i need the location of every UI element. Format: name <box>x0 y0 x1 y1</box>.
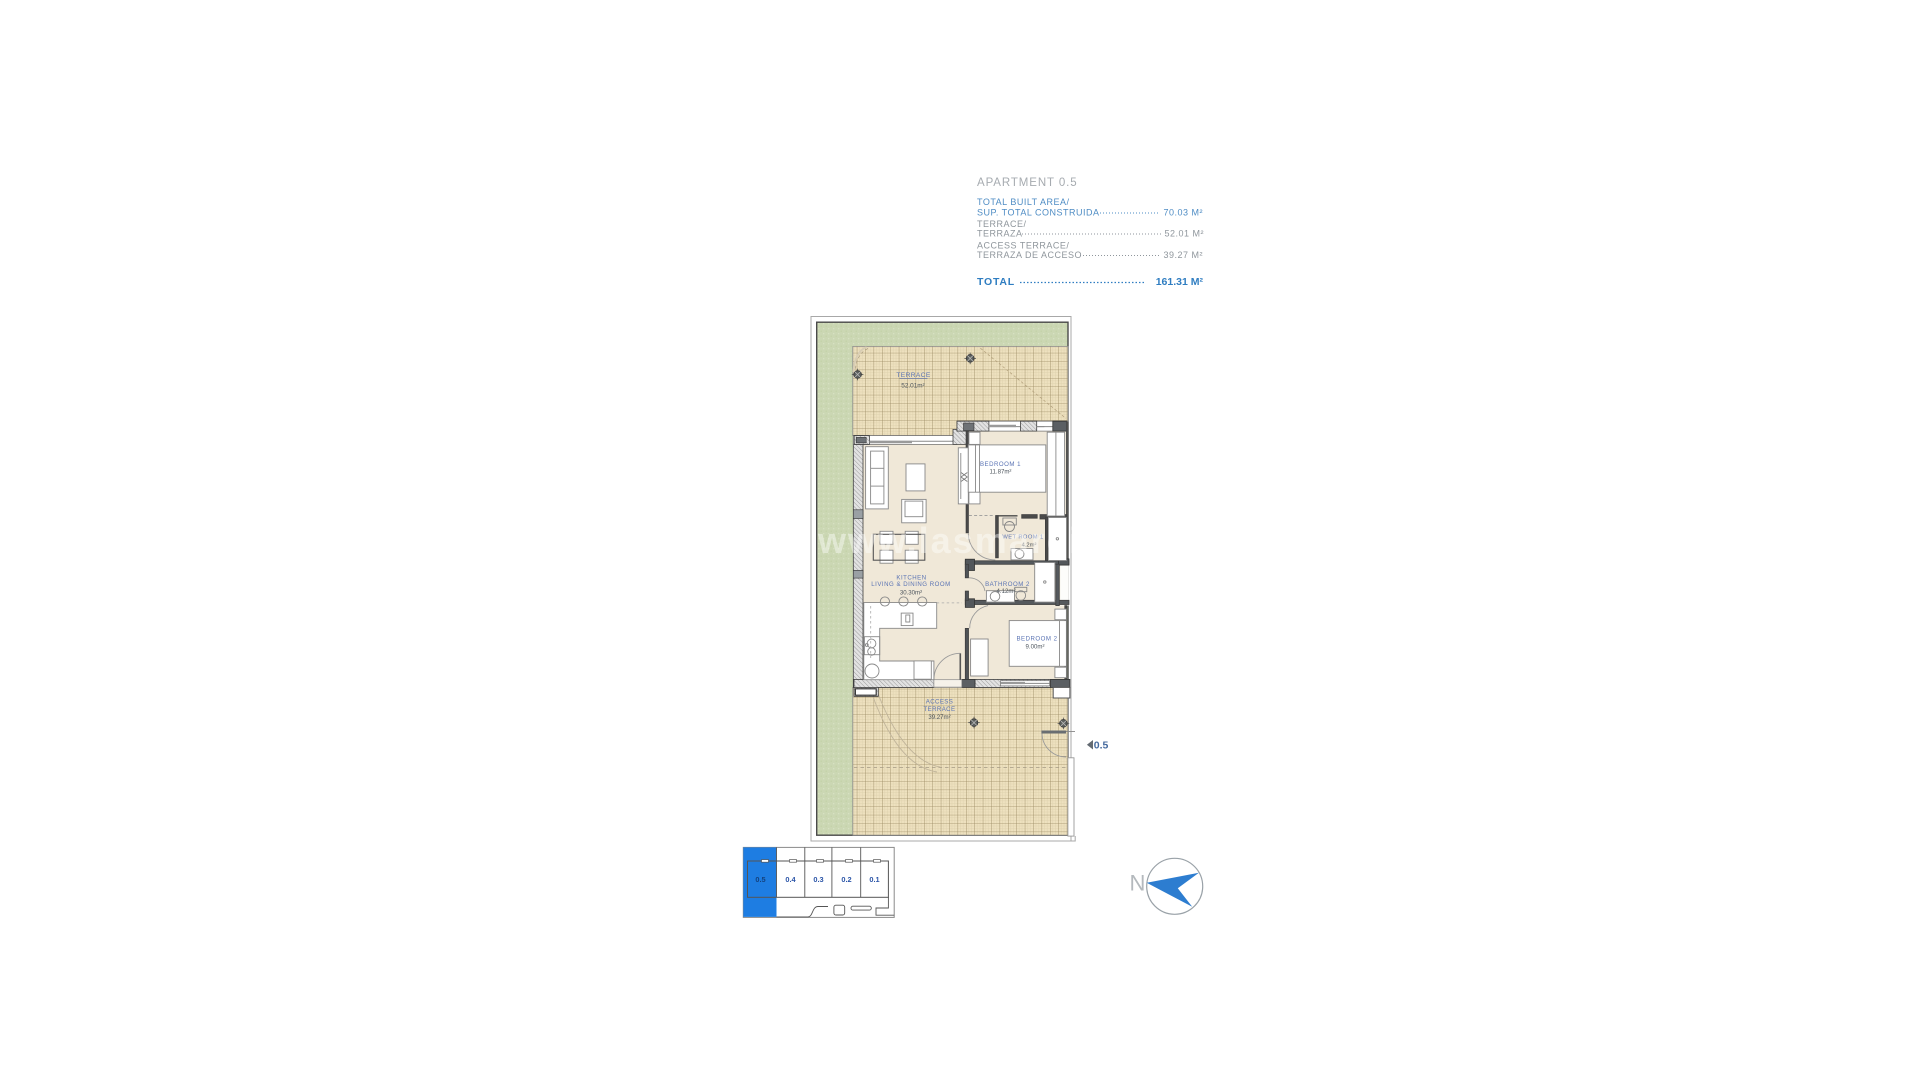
svg-text:11.87m²: 11.87m² <box>990 469 1012 476</box>
svg-text:0.3: 0.3 <box>813 875 823 884</box>
svg-text:9.00m²: 9.00m² <box>1026 644 1045 651</box>
svg-text:TOTAL BUILT AREA/: TOTAL BUILT AREA/ <box>977 197 1070 207</box>
svg-text:52.01m²: 52.01m² <box>901 383 924 390</box>
svg-text:LIVING & DINING ROOM: LIVING & DINING ROOM <box>871 581 950 588</box>
svg-text:SUP. TOTAL CONSTRUIDA: SUP. TOTAL CONSTRUIDA <box>977 208 1100 218</box>
svg-text:70.03 M²: 70.03 M² <box>1163 208 1203 218</box>
svg-text:0.5: 0.5 <box>755 875 765 884</box>
svg-text:39.27m²: 39.27m² <box>928 714 950 721</box>
svg-text:0.2: 0.2 <box>841 875 851 884</box>
svg-text:161.31 M²: 161.31 M² <box>1156 276 1204 288</box>
svg-text:BATHROOM 2: BATHROOM 2 <box>985 581 1030 588</box>
svg-text:TERRACE: TERRACE <box>896 372 931 379</box>
svg-text:0.4: 0.4 <box>785 875 796 884</box>
svg-text:52.01 M²: 52.01 M² <box>1164 229 1204 239</box>
svg-text:TERRAZA: TERRAZA <box>977 229 1023 239</box>
svg-text:BEDROOM 1: BEDROOM 1 <box>980 461 1021 468</box>
svg-text:39.27 M²: 39.27 M² <box>1163 250 1203 260</box>
svg-text:BEDROOM 2: BEDROOM 2 <box>1016 636 1057 643</box>
svg-text:ACCESS: ACCESS <box>926 699 953 706</box>
svg-text:TERRAZA DE ACCESO: TERRAZA DE ACCESO <box>977 250 1082 260</box>
svg-text:APARTMENT 0.5: APARTMENT 0.5 <box>977 177 1078 189</box>
svg-text:TERRACE/: TERRACE/ <box>977 219 1027 229</box>
svg-text:www.lasmarcienda.com: www.lasmarcienda.com <box>817 520 1265 561</box>
svg-text:4.12m²: 4.12m² <box>997 588 1016 595</box>
svg-text:0.1: 0.1 <box>869 875 879 884</box>
svg-text:ACCESS TERRACE/: ACCESS TERRACE/ <box>977 241 1069 251</box>
svg-text:30.30m²: 30.30m² <box>900 590 922 597</box>
svg-text:0.5: 0.5 <box>1094 740 1109 752</box>
svg-text:TOTAL: TOTAL <box>977 276 1015 288</box>
svg-text:N: N <box>1130 871 1146 896</box>
svg-text:TERRACE: TERRACE <box>924 706 956 713</box>
